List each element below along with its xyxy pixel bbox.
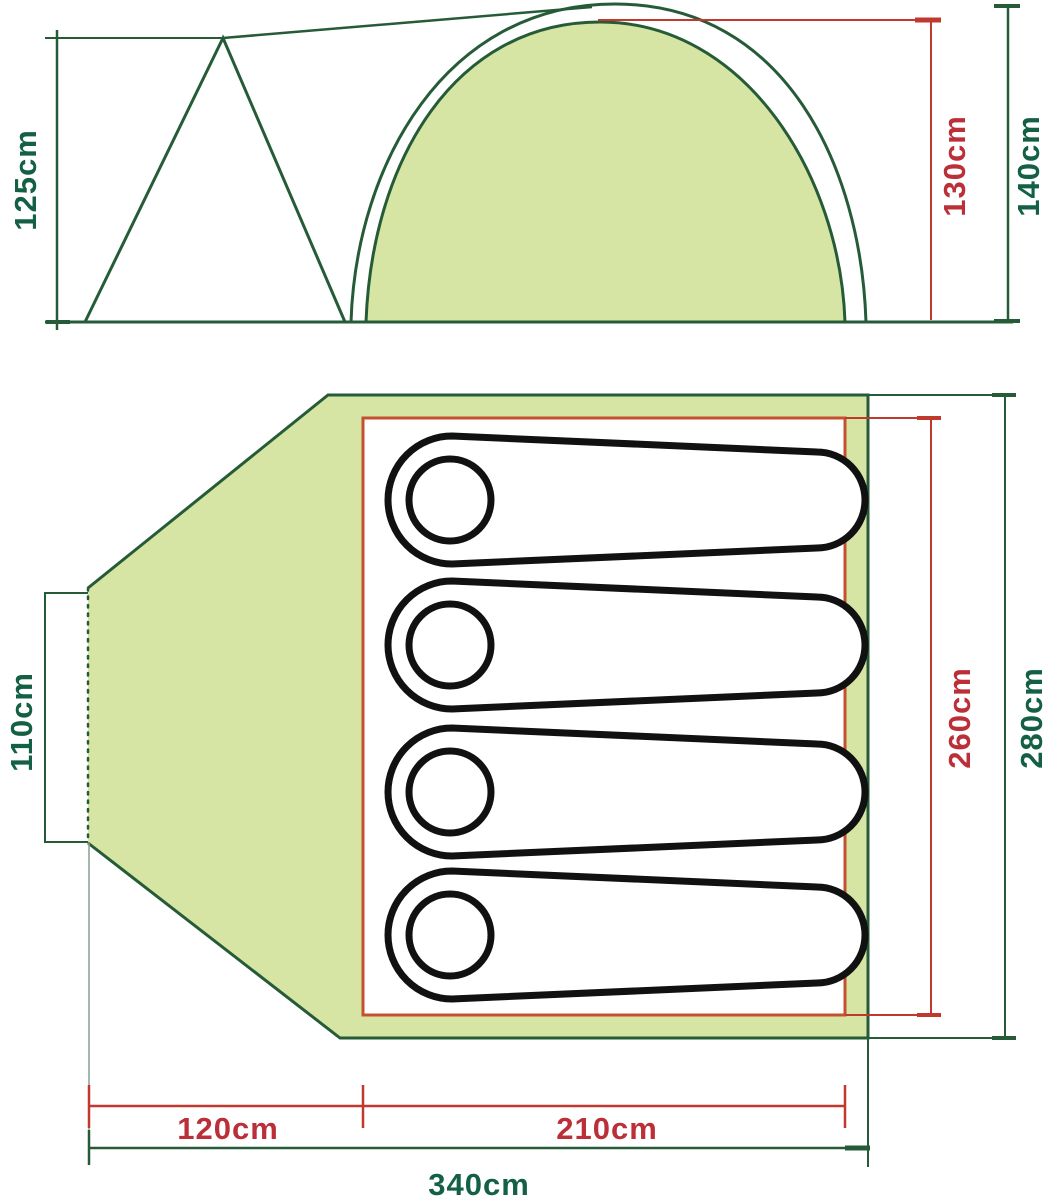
tent-dimension-diagram: 125cm 130cm 140cm [0,0,1056,1200]
diagram-canvas: 125cm 130cm 140cm [0,0,1056,1200]
sleeping-bag-2-hood [409,604,491,686]
dim-outer-height-label: 140cm [1011,115,1046,217]
sleeping-bag-3-hood [409,751,491,833]
side-view-vestibule-triangle [85,38,345,322]
side-view: 125cm 130cm 140cm [8,4,1046,330]
dim-sleeping-length-label: 210cm [556,1111,658,1146]
dim-outer-height: 140cm [994,6,1046,321]
dim-porch-height: 125cm [8,30,223,330]
dim-outer-width-label: 280cm [1014,667,1049,769]
dim-porch-length-label: 120cm [177,1111,279,1146]
sleeping-bag-4-hood [409,894,491,976]
dim-porch-height-label: 125cm [8,129,43,231]
floor-plan: 110cm 260cm 280cm [4,395,1049,1200]
dim-inner-height-label: 130cm [937,115,972,217]
dim-total-length-label: 340cm [428,1167,530,1200]
door-bracket [45,593,88,842]
dim-door-width-label: 110cm [4,672,39,772]
sleeping-bag-1-hood [409,459,491,541]
dim-inner-width-label: 260cm [942,667,977,769]
